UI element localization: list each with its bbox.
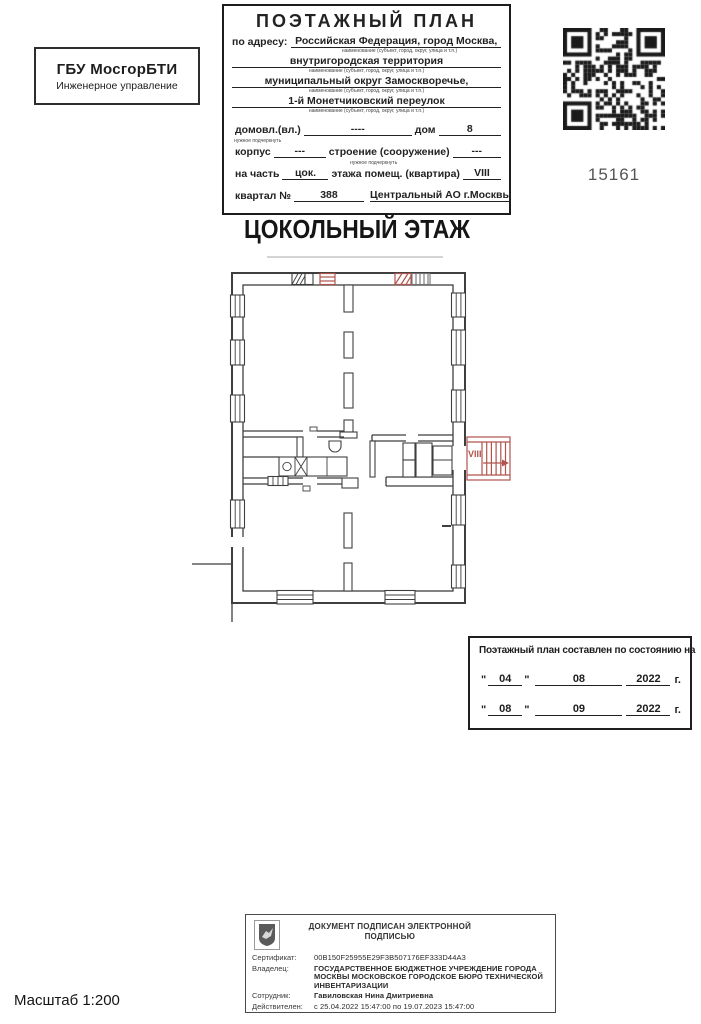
- moscow-emblem-icon: [254, 920, 280, 950]
- organization-box: ГБУ МосгорБТИ Инженерное управление: [34, 47, 200, 105]
- floor-plan: VIII: [190, 250, 525, 630]
- scale-label: Масштаб 1:200: [14, 992, 120, 1009]
- date-2-year: 2022: [626, 703, 670, 716]
- na-chast-value: цок.: [282, 167, 328, 180]
- employee-value: Гавиловская Нина Дмитриевна: [314, 992, 549, 1001]
- field-row-domovl: домовл.(вл.) ---- дом 8 нужное подчеркну…: [232, 123, 501, 136]
- date-box-title: Поэтажный план составлен по состоянию на: [479, 645, 681, 656]
- entry-cabinets: [403, 443, 452, 477]
- signature-title-line2: ПОДПИСЬЮ: [296, 932, 484, 942]
- address-label: по адресу:: [232, 36, 287, 48]
- kvartal-label: квартал №: [235, 190, 291, 202]
- toilet-icon: [329, 441, 341, 452]
- signature-row-owner: Владелец: ГОСУДАРСТВЕННОЕ БЮДЖЕТНОЕ УЧРЕ…: [252, 965, 549, 991]
- address-line-1: Российская Федерация, город Москва,: [291, 35, 501, 48]
- document-title: ПОЭТАЖНЫЙ ПЛАН: [232, 11, 501, 32]
- qr-block: 15161: [563, 28, 665, 185]
- signature-header-row: ДОКУМЕНТ ПОДПИСАН ЭЛЕКТРОННОЙ ПОДПИСЬЮ: [252, 919, 549, 951]
- date-2-day: 08: [488, 703, 522, 716]
- date-1-year: 2022: [626, 673, 670, 686]
- quote-close-1: ": [524, 674, 529, 686]
- certificate-value: 00B150F25955E29F3B507176EF333D44A3: [314, 954, 549, 963]
- qr-number: 15161: [563, 165, 665, 185]
- signature-row-validity: Действителен: с 25.04.2022 15:47:00 по 1…: [252, 1003, 549, 1012]
- hatch-red-1: [320, 274, 335, 285]
- date-2-suffix: г.: [674, 704, 681, 716]
- hatch-red-2: [395, 274, 411, 285]
- address-line-4: 1-й Монетчиковский переулок: [232, 95, 501, 108]
- korpus-label: корпус: [235, 146, 271, 158]
- date-row-2: " 08 " 09 2022 г.: [479, 703, 681, 716]
- etazha-value: VIII: [463, 167, 501, 180]
- na-chast-label: на часть: [235, 168, 279, 180]
- organization-subtitle: Инженерное управление: [56, 80, 178, 92]
- address-row-1: по адресу: Российская Федерация, город М…: [232, 35, 501, 48]
- central-partition: [340, 285, 357, 438]
- plain-box: [305, 274, 313, 285]
- date-row-1: " 04 " 08 2022 г.: [479, 673, 681, 686]
- dom-label: дом: [415, 124, 436, 136]
- header-form-box: ПОЭТАЖНЫЙ ПЛАН по адресу: Российская Фед…: [222, 4, 511, 215]
- boundary-lines: [192, 564, 232, 622]
- signature-rows: Сертификат: 00B150F25955E29F3B507176EF33…: [252, 954, 549, 1012]
- owner-value: ГОСУДАРСТВЕННОЕ БЮДЖЕТНОЕ УЧРЕЖДЕНИЕ ГОР…: [314, 965, 549, 991]
- signature-row-certificate: Сертификат: 00B150F25955E29F3B507176EF33…: [252, 954, 549, 963]
- hatch-gray: [412, 274, 430, 285]
- owner-label: Владелец:: [252, 965, 314, 991]
- lower-partition: [344, 513, 352, 591]
- field-row-kvartal: квартал № 388 Центральный АО г.Москвы: [232, 189, 501, 202]
- employee-label: Сотрудник:: [252, 992, 314, 1001]
- address-caption-4: наименование (субъект, город, округ, ули…: [232, 108, 501, 114]
- qr-code: [563, 28, 665, 130]
- scanned-floor-plan-document: { "org_box": { "line1": "ГБУ МосгорБТИ",…: [0, 0, 701, 1024]
- top-wall-vents: [292, 274, 430, 285]
- domovl-value: ----: [304, 123, 412, 136]
- address-line-2: внутригородская территория: [232, 55, 501, 68]
- address-caption-1: наименование (субъект, город, округ, ули…: [298, 48, 501, 54]
- field-row-etazh: на часть цок. этажа помещ. (квартира) VI…: [232, 167, 501, 180]
- stroenie-value: ---: [453, 145, 501, 158]
- kvartal-value: 388: [294, 189, 364, 202]
- quote-open-2: ": [481, 704, 486, 716]
- signature-title: ДОКУМЕНТ ПОДПИСАН ЭЛЕКТРОННОЙ ПОДПИСЬЮ: [252, 919, 484, 941]
- signature-block: ДОКУМЕНТ ПОДПИСАН ЭЛЕКТРОННОЙ ПОДПИСЬЮ С…: [245, 914, 556, 1013]
- stair-label: VIII: [468, 449, 482, 459]
- bottom-wall-windows: [277, 591, 415, 605]
- corridor-window: [268, 477, 288, 486]
- kitchen-fixtures: [243, 437, 347, 476]
- date-1-day: 04: [488, 673, 522, 686]
- signature-title-line1: ДОКУМЕНТ ПОДПИСАН ЭЛЕКТРОННОЙ: [296, 922, 484, 932]
- date-2-month: 09: [535, 703, 622, 716]
- validity-value: с 25.04.2022 15:47:00 по 19.07.2023 15:4…: [314, 1003, 549, 1012]
- date-1-suffix: г.: [674, 674, 681, 686]
- address-row-2: внутригородская территория: [232, 55, 501, 68]
- address-row-3: муниципальный округ Замоскворечье,: [232, 75, 501, 88]
- organization-name: ГБУ МосгорБТИ: [57, 61, 178, 78]
- dom-value: 8: [439, 123, 501, 136]
- address-row-4: 1-й Монетчиковский переулок: [232, 95, 501, 108]
- hatch-black: [292, 274, 305, 285]
- address-caption-3: наименование (субъект, город, округ, ули…: [232, 88, 501, 94]
- address-line-3: муниципальный округ Замоскворечье,: [232, 75, 501, 88]
- floor-title: ЦОКОЛЬНЫЙ ЭТАЖ: [244, 214, 470, 245]
- field-row-korpus: корпус --- строение (сооружение) --- нуж…: [232, 145, 501, 158]
- address-caption-2: наименование (субъект, город, округ, ули…: [232, 68, 501, 74]
- quote-close-2: ": [524, 704, 529, 716]
- etazha-label: этажа помещ. (квартира): [331, 168, 459, 180]
- korpus-value: ---: [274, 145, 326, 158]
- certificate-label: Сертификат:: [252, 954, 314, 963]
- date-stamp-box: Поэтажный план составлен по состоянию на…: [468, 636, 692, 730]
- validity-label: Действителен:: [252, 1003, 314, 1012]
- signature-row-employee: Сотрудник: Гавиловская Нина Дмитриевна: [252, 992, 549, 1001]
- staircase: VIII: [467, 437, 510, 480]
- okrug-value: Центральный АО г.Москвы: [370, 189, 512, 202]
- date-1-month: 08: [535, 673, 622, 686]
- quote-open-1: ": [481, 674, 486, 686]
